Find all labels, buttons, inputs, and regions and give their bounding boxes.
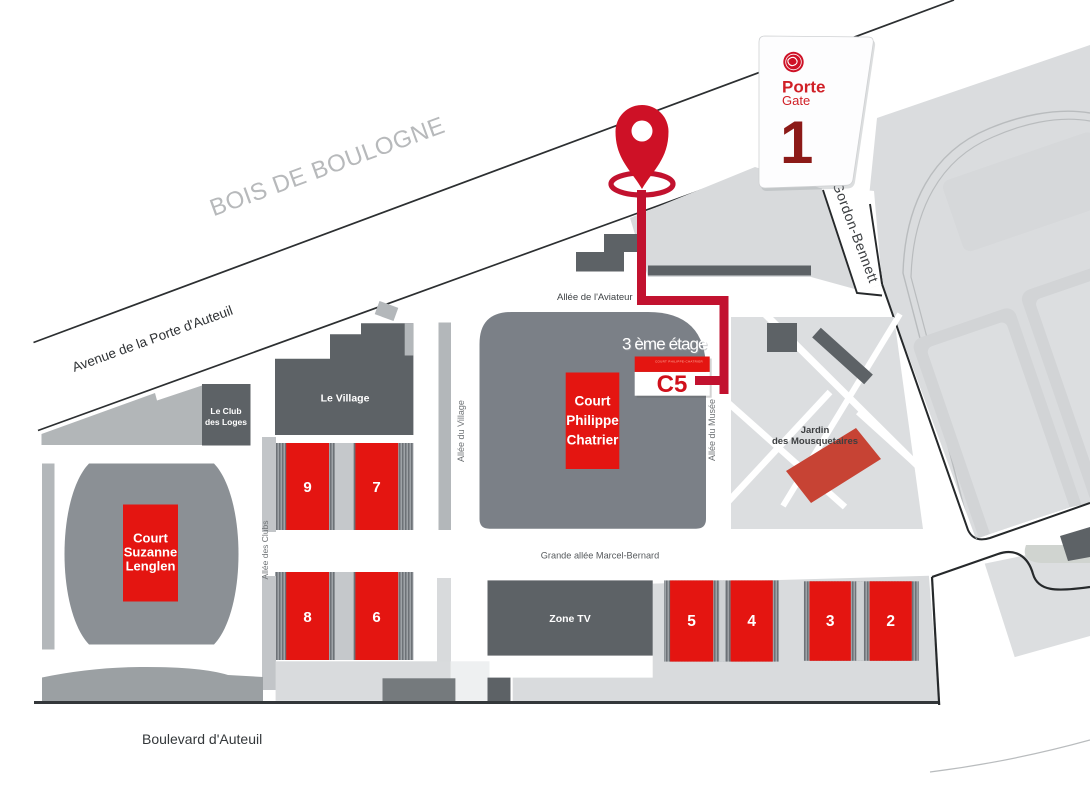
svg-text:Lenglen: Lenglen [126, 559, 176, 574]
svg-text:7: 7 [372, 479, 380, 496]
svg-text:Allée du Musée: Allée du Musée [707, 399, 717, 461]
svg-text:9: 9 [303, 479, 311, 496]
svg-text:Suzanne: Suzanne [124, 545, 177, 560]
svg-text:des Mousquetaires: des Mousquetaires [772, 436, 858, 447]
svg-text:Boulevard d'Auteuil: Boulevard d'Auteuil [142, 731, 262, 747]
svg-text:Chatrier: Chatrier [567, 433, 620, 448]
svg-text:C5: C5 [657, 371, 688, 398]
svg-text:2: 2 [886, 613, 895, 630]
svg-text:Allée de l'Aviateur: Allée de l'Aviateur [557, 292, 633, 303]
svg-text:Le Village: Le Village [321, 393, 370, 405]
svg-text:3: 3 [826, 613, 835, 630]
svg-text:5: 5 [687, 613, 696, 630]
svg-text:1: 1 [780, 109, 813, 176]
svg-text:Court: Court [575, 394, 611, 409]
svg-text:Gate: Gate [782, 93, 810, 108]
svg-text:Court: Court [133, 531, 168, 546]
svg-text:Allée du Village: Allée du Village [456, 400, 466, 462]
svg-text:Jardin: Jardin [801, 425, 830, 436]
svg-text:COURT PHILIPPE-CHATRIER: COURT PHILIPPE-CHATRIER [655, 360, 703, 364]
svg-text:6: 6 [372, 609, 380, 626]
svg-text:8: 8 [303, 609, 311, 626]
svg-text:3 ème étage: 3 ème étage [622, 335, 707, 354]
svg-text:des Loges: des Loges [205, 417, 247, 427]
svg-text:Philippe: Philippe [566, 413, 619, 428]
svg-text:4: 4 [747, 613, 756, 630]
svg-text:Zone TV: Zone TV [549, 613, 590, 625]
svg-text:Grande allée Marcel-Bernard: Grande allée Marcel-Bernard [541, 551, 659, 561]
svg-text:Allée des Clubs: Allée des Clubs [260, 520, 270, 579]
svg-text:Le Club: Le Club [210, 406, 241, 416]
